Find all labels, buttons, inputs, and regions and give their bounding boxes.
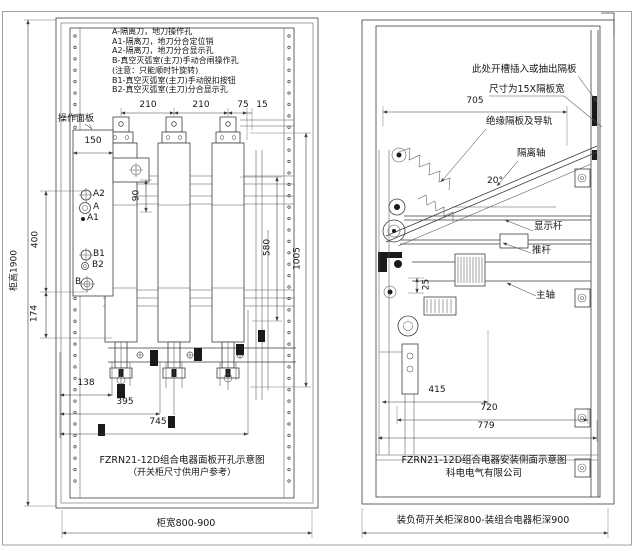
drawing-sheet: A-隔离刀，地刀操作孔 A1-隔离刀，地刀分合定位销 A2-隔离刀，地刀分合显示… [0,0,634,551]
cabinet-height-label: 柜高1900 [10,239,21,303]
legend-line-2: A1-隔离刀，地刀分合定位销 [112,37,239,47]
slot-note-line1: 此处开槽插入或抽出隔板 [472,64,577,75]
dim-745: 745 [138,417,178,428]
dim-779: 779 [466,421,506,432]
dim-580: 580 [263,233,274,263]
insulation-board [386,146,597,246]
hole-label-a2: A2 [93,189,105,200]
push-rod-label: 推杆 [532,245,551,256]
angle-label: 20° [487,176,503,187]
isolation-shaft-label: 隔离轴 [517,148,546,159]
dim-150: 150 [73,136,113,147]
hole-legend: A-隔离刀，地刀操作孔 A1-隔离刀，地刀分合定位销 A2-隔离刀，地刀分合显示… [112,27,239,95]
dim-720: 720 [469,403,509,414]
hole-label-b: B [75,277,81,288]
right-caption-title: FZRN21-12D组合电器安装侧面示意图 [384,455,584,466]
dim-210-a: 210 [132,100,164,111]
dim-415: 415 [417,385,457,396]
legend-line-5: (注意：只能顺时针旋转) [112,66,239,76]
legend-line-7: B2-真空灭弧室(主刀)分合显示孔 [112,85,239,95]
hole-label-b1: B1 [93,249,105,260]
dim-25: 25 [422,271,433,299]
dim-90: 90 [132,182,143,210]
right-caption-company: 科电电气有限公司 [384,468,584,479]
pole-column-3 [212,117,244,378]
indicator-rod-label: 显示杆 [534,221,563,232]
dim-210-b: 210 [185,100,217,111]
cabinet-width-label: 柜宽800-900 [116,518,256,529]
dim-174: 174 [30,299,41,329]
left-caption-note: （开关柜尺寸供用户参考） [82,468,282,479]
hole-label-a: A [93,202,99,213]
dim-705: 705 [455,96,495,107]
hole-label-b2: B2 [92,260,104,271]
rail-label: 绝缘隔板及导轨 [486,116,553,127]
pole-column-2 [158,117,190,378]
operation-panel-label: 操作面板 [58,114,94,125]
legend-line-4: B-真空灭弧室(主刀)手动合闸操作孔 [112,56,239,66]
legend-line-3: A2-隔离刀，地刀分合显示孔 [112,46,239,56]
left-caption-title: FZRN21-12D组合电器面板开孔示意图 [82,455,282,466]
legend-line-6: B1-真空灭弧室(主刀)手动脱扣按钮 [112,76,239,86]
dim-138: 138 [66,378,106,389]
main-shaft-label: 主轴 [536,290,555,301]
dim-400: 400 [31,225,42,255]
dim-395: 395 [105,397,145,408]
operation-panel [73,124,149,296]
slot-note-line2: 尺寸为15X隔板宽 [489,84,565,95]
hole-label-a1: A1 [87,213,99,224]
legend-line-1: A-隔离刀，地刀操作孔 [112,27,239,37]
cabinet-depth-label: 装负荷开关柜深800-装组合电器柜深900 [373,515,593,526]
dim-15: 15 [248,100,276,111]
dim-1005: 1005 [293,239,304,279]
